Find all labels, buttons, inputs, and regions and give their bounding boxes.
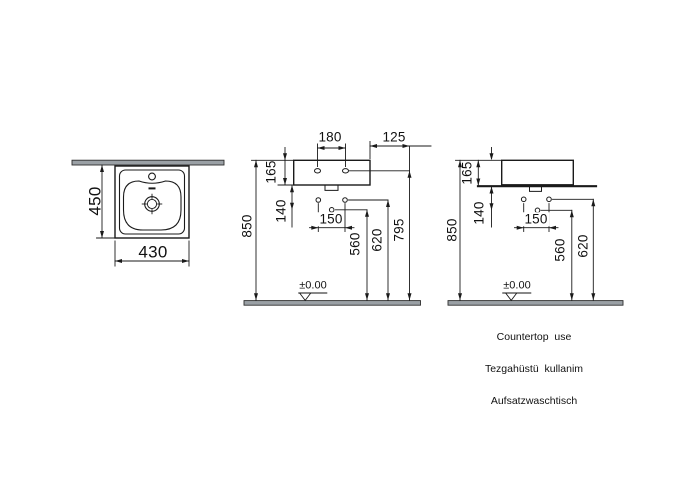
dim-front-drain-height-label: 560 (348, 232, 362, 255)
fixing-hole-right-icon (343, 198, 348, 203)
caption-turkish: Tezgahüstü kullanim (485, 364, 583, 375)
overflow-slot-icon (149, 187, 156, 189)
dim-edge-offset-label: 125 (382, 130, 405, 144)
dim-front-rim-165-label: 165 (264, 160, 278, 183)
caption-german: Aufsatzwaschtisch (485, 396, 583, 407)
basin-body (502, 160, 574, 185)
basin-outer-rim (115, 166, 189, 238)
dim-depth-label: 450 (87, 186, 104, 215)
floor-section (448, 301, 623, 306)
dim-counter-fixing-height-label: 620 (576, 234, 590, 257)
dim-counter-hole-drop-label: 140 (472, 201, 486, 224)
washbasin-technical-drawing: 450 430 180 125 165 140 150 560 620 795 … (0, 0, 700, 494)
dim-front-hole-drop-label: 140 (274, 199, 288, 222)
dim-tap-spacing-label: 180 (318, 130, 341, 144)
dim-front-hole-spacing-label: 150 (317, 212, 344, 226)
dim-front-fixing-height-label: 620 (370, 228, 384, 251)
dim-width-label: 430 (138, 244, 167, 261)
fixing-hole-left-icon (316, 198, 321, 203)
dim-front-tap-height-label: 795 (392, 218, 406, 241)
dim-front-rim-height-label: 850 (240, 214, 254, 237)
fixing-hole-left-icon (521, 197, 526, 202)
wall-section (72, 160, 224, 165)
datum-triangle-icon (300, 293, 311, 300)
dim-counter-drain-height-label: 560 (553, 238, 567, 261)
dim-counter-rim-height-label: 850 (445, 218, 459, 241)
dim-counter-hole-spacing-label: 150 (522, 212, 549, 226)
front-floor-datum-label: ±0.00 (298, 281, 327, 294)
fixing-hole-right-icon (547, 197, 552, 202)
caption-english: Countertop use (485, 332, 583, 343)
drain-housing (530, 188, 542, 192)
floor-section (244, 301, 421, 306)
countertop-view (448, 148, 623, 306)
dim-counter-rim-165-label: 165 (460, 161, 474, 184)
installation-caption: Countertop use Tezgahüstü kullanim Aufsa… (485, 311, 583, 417)
drain-housing (325, 185, 338, 190)
datum-triangle-icon (506, 293, 517, 300)
basin-body (294, 160, 370, 185)
counter-floor-datum-label: ±0.00 (502, 281, 531, 294)
